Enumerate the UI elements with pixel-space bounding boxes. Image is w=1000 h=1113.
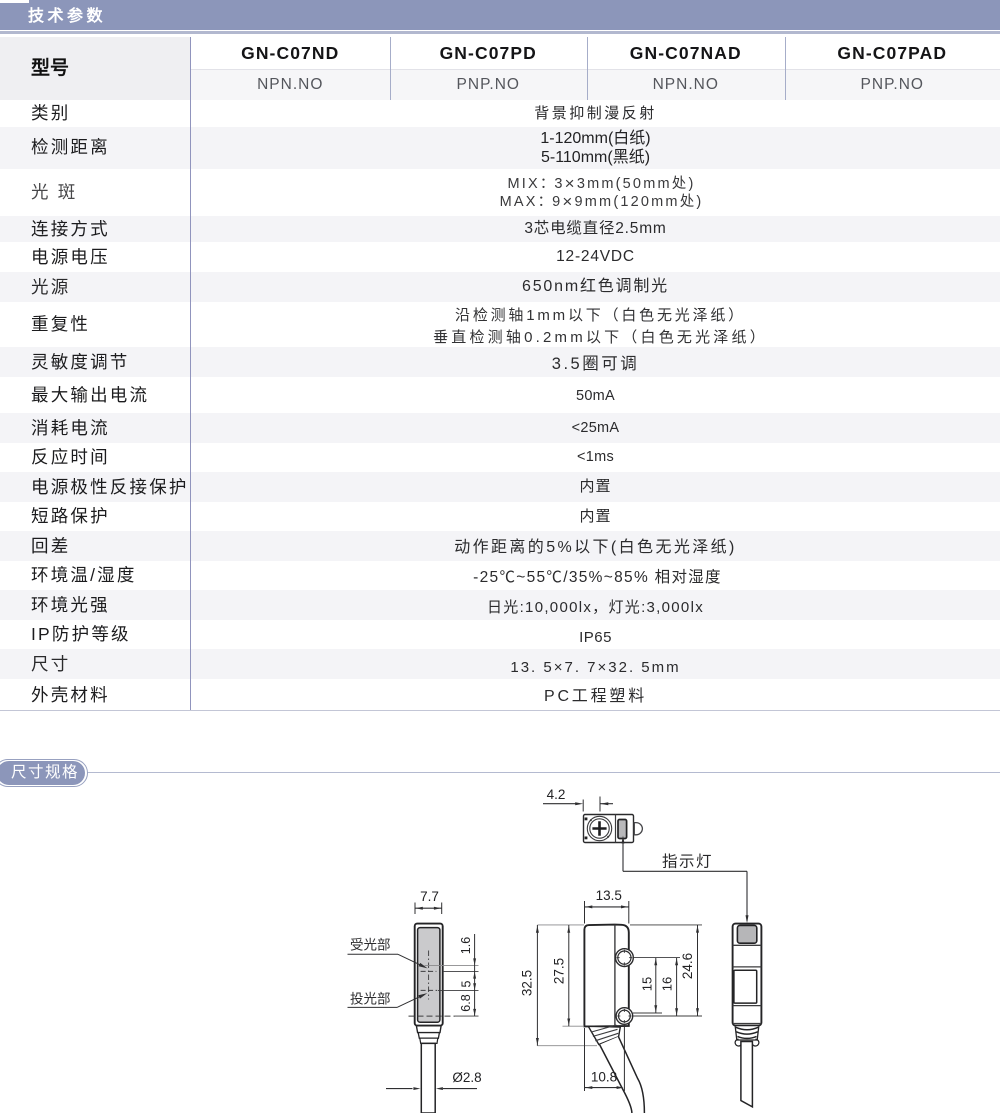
svg-text:6.8: 6.8 (459, 994, 473, 1011)
svg-text:13.5: 13.5 (596, 888, 622, 903)
svg-text:4.2: 4.2 (547, 787, 566, 802)
svg-text:7.7: 7.7 (420, 889, 439, 904)
svg-text:16: 16 (660, 977, 675, 991)
svg-text:10.8: 10.8 (591, 1070, 617, 1085)
svg-text:投光部: 投光部 (350, 992, 391, 1007)
svg-text:32.5: 32.5 (520, 970, 535, 996)
svg-text:1.6: 1.6 (459, 937, 473, 954)
svg-text:指示灯: 指示灯 (662, 853, 713, 871)
svg-text:24.6: 24.6 (680, 953, 695, 979)
svg-text:27.5: 27.5 (552, 958, 567, 984)
svg-text:受光部: 受光部 (350, 938, 391, 953)
svg-text:5: 5 (460, 980, 474, 987)
svg-text:15: 15 (640, 977, 655, 991)
svg-text:Ø2.8: Ø2.8 (452, 1070, 481, 1085)
